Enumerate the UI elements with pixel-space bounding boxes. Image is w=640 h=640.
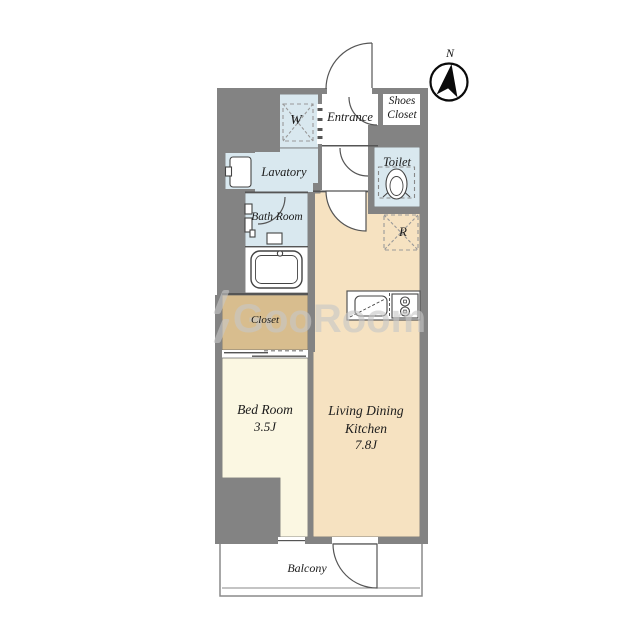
bed-room-size: 3.5J (222, 419, 308, 436)
entrance-door-icon (326, 43, 372, 89)
room-label-toilet: Toilet (374, 155, 420, 170)
bed-room-name: Bed Room (222, 401, 308, 419)
room-label-balcony: Balcony (269, 561, 345, 575)
ldk-name: Living Dining Kitchen (313, 402, 419, 437)
room-label-entrance: Entrance (319, 110, 381, 125)
floorplan-page: GooRoom N Entrance Shoes Closet Toilet L… (0, 0, 640, 640)
ldk-floor (313, 192, 420, 537)
floorplan-drawing (0, 0, 640, 640)
room-label-bath-room: Bath Room (243, 211, 311, 225)
room-label-closet: Closet (222, 314, 308, 327)
refrigerator-label: R (396, 224, 410, 239)
north-compass-icon (431, 63, 468, 101)
bathtub-icon (251, 251, 302, 288)
room-label-ldk: Living Dining Kitchen 7.8J (313, 402, 419, 454)
room-label-lavatory: Lavatory (250, 165, 318, 180)
washer-label: W (289, 113, 303, 130)
compass-north-label: N (442, 46, 458, 61)
ldk-size: 7.8J (313, 437, 419, 454)
room-label-shoes-closet: Shoes Closet (381, 95, 423, 122)
room-label-bed-room: Bed Room 3.5J (222, 401, 308, 435)
toilet-door-icon (340, 148, 368, 176)
kitchen-counter-icon (347, 291, 420, 320)
